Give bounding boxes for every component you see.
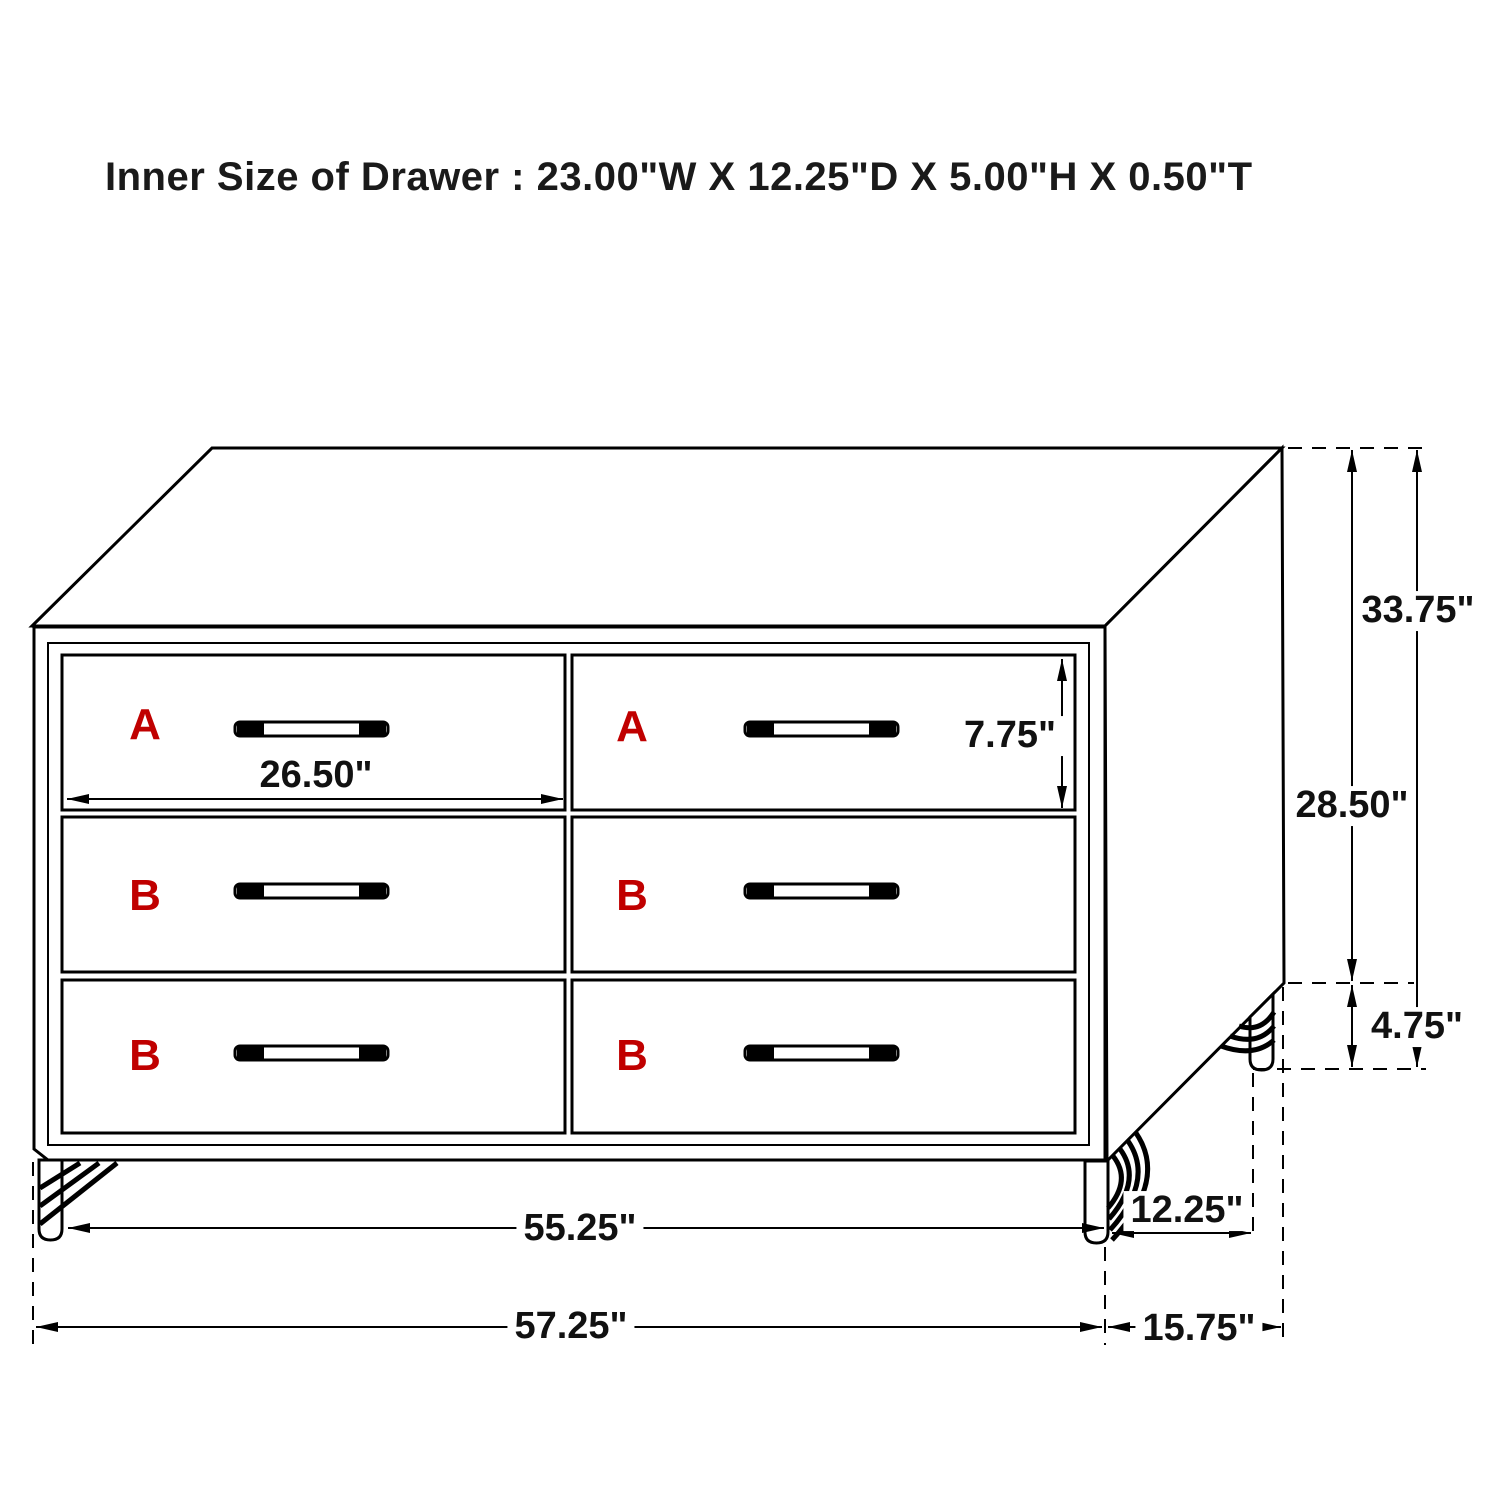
dresser-line-drawing	[0, 0, 1500, 1500]
dim-text-overall-width: 57.25"	[507, 1307, 634, 1347]
diagram-title: Inner Size of Drawer : 23.00"W X 12.25"D…	[105, 155, 1253, 200]
dim-text-overall-depth: 15.75"	[1135, 1309, 1262, 1349]
cabinet-top-face	[32, 448, 1282, 626]
drawer-label-middle-left: B	[129, 874, 161, 918]
dim-text-drawer-front-height: 7.75"	[957, 716, 1063, 756]
dim-text-drawer-width: 26.50"	[252, 756, 379, 796]
dim-text-drawer-inner-depth: 12.25"	[1123, 1191, 1250, 1231]
dim-line-leg-height	[1347, 985, 1357, 1067]
drawer-label-middle-right: B	[616, 874, 648, 918]
dim-text-case-height: 28.50"	[1288, 786, 1415, 826]
drawer-label-top-right: A	[616, 705, 648, 749]
diagram-canvas: Inner Size of Drawer : 23.00"W X 12.25"D…	[0, 0, 1500, 1500]
drawer-label-bottom-right: B	[616, 1034, 648, 1078]
drawer-label-bottom-left: B	[129, 1034, 161, 1078]
dim-text-overall-height: 33.75"	[1354, 591, 1481, 631]
dim-line-overall-height	[1412, 450, 1422, 1067]
drawer-label-top-left: A	[129, 703, 161, 747]
dim-line-case-height	[1347, 450, 1357, 981]
dim-text-front-leg-span: 55.25"	[516, 1209, 643, 1249]
dim-text-leg-height: 4.75"	[1364, 1007, 1470, 1047]
